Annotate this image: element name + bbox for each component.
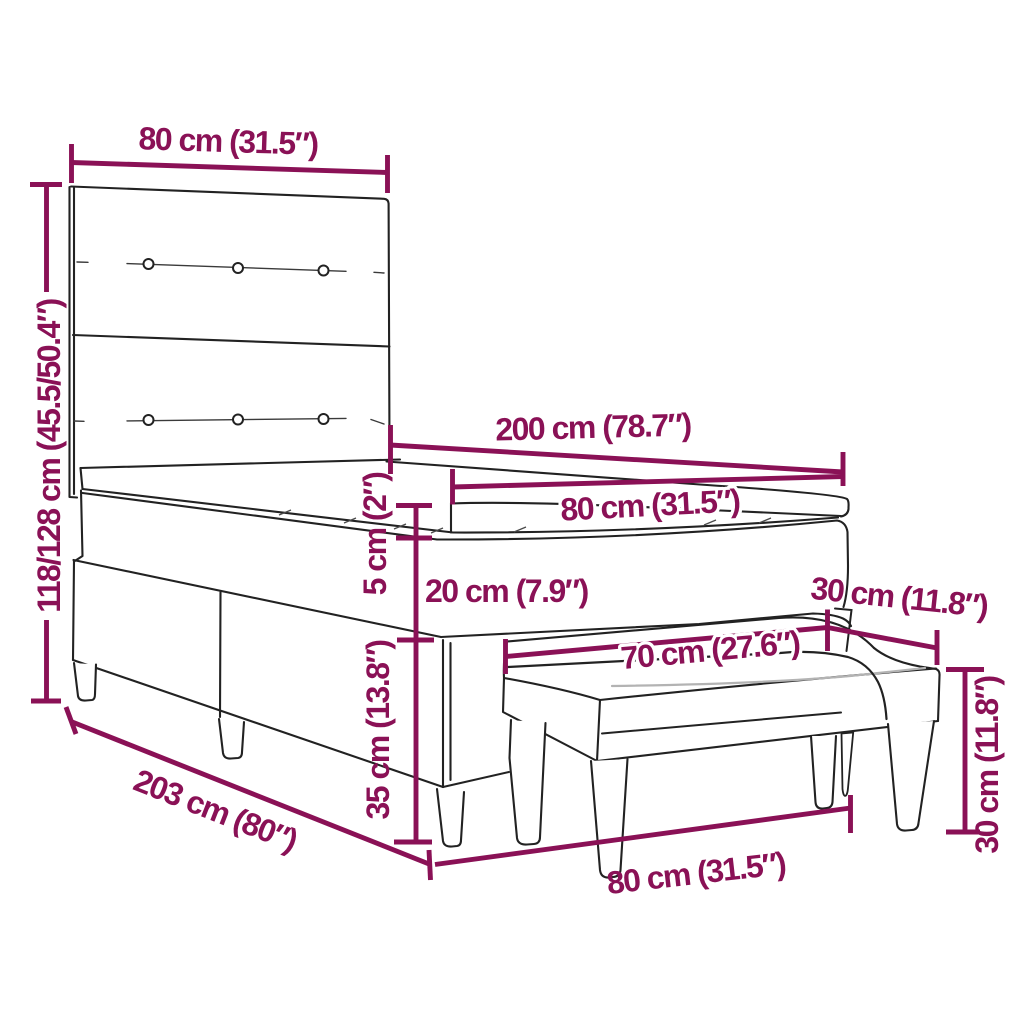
svg-text:200 cm (78.7″): 200 cm (78.7″) bbox=[495, 406, 692, 447]
svg-text:5 cm (2″): 5 cm (2″) bbox=[357, 472, 393, 596]
svg-text:30 cm (11.8″): 30 cm (11.8″) bbox=[969, 676, 1005, 854]
svg-text:118/128 cm (45.5/50.4″): 118/128 cm (45.5/50.4″) bbox=[31, 298, 67, 612]
svg-text:20 cm (7.9″): 20 cm (7.9″) bbox=[425, 573, 589, 609]
svg-text:35 cm (13.8″): 35 cm (13.8″) bbox=[360, 640, 396, 820]
svg-text:80 cm (31.5″): 80 cm (31.5″) bbox=[138, 120, 319, 162]
